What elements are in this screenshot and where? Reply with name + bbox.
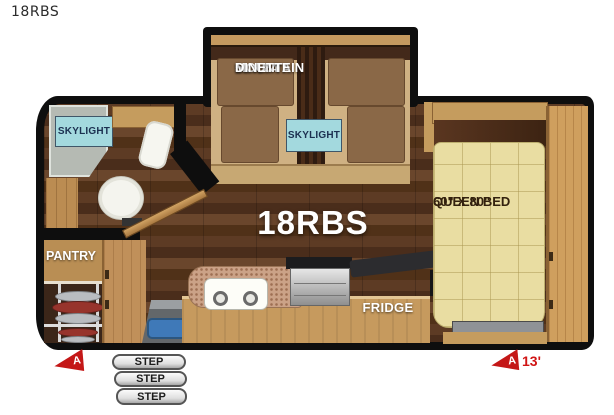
- cabinet-handle: [105, 270, 109, 279]
- pantry-label: PANTRY: [46, 249, 108, 263]
- wardrobe-cabinet: [102, 240, 146, 343]
- plate: [55, 313, 101, 324]
- burner: [243, 291, 258, 306]
- range-appliance: [290, 268, 350, 306]
- page-title: 18RBS: [11, 4, 59, 20]
- dinette-cushion: [221, 106, 279, 163]
- vanity-cabinet: [46, 178, 78, 230]
- queen-bed: [433, 142, 545, 328]
- cabinet-handle: [549, 300, 553, 309]
- entry-step: STEP: [116, 388, 187, 405]
- awning-marker-right: A: [490, 349, 521, 374]
- shelf-edge: [44, 324, 102, 327]
- awning-length-label: 13': [522, 353, 541, 369]
- bathroom-skylight-label: SKYLIGHT: [55, 116, 113, 147]
- fridge-label: FRIDGE: [352, 300, 424, 315]
- awning-marker-left: A: [53, 349, 86, 375]
- dinette-slideout-fascia: [211, 35, 410, 47]
- cabinet-handle: [105, 300, 109, 309]
- entry-step: STEP: [112, 354, 186, 370]
- plate: [61, 336, 95, 343]
- dinette-cushion: [328, 58, 405, 106]
- bed-foot-trim: [443, 332, 547, 344]
- bed-name: QUEEN BED: [433, 193, 510, 210]
- dinette-name-2: DINETTE: [235, 60, 291, 76]
- cabinet-handle: [549, 252, 553, 261]
- model-name-label: 18RBS: [248, 204, 378, 242]
- dinette-cushion: [347, 106, 405, 163]
- toilet: [98, 176, 144, 220]
- entry-step: STEP: [114, 371, 187, 387]
- floorplan-image: 18RBS 51 x 84 MOUNTAIN DINETTE SKYLIGHT …: [0, 0, 614, 415]
- dinette-step-base: [211, 164, 410, 184]
- burner: [213, 291, 228, 306]
- dinette-skylight-label: SKYLIGHT: [286, 119, 342, 152]
